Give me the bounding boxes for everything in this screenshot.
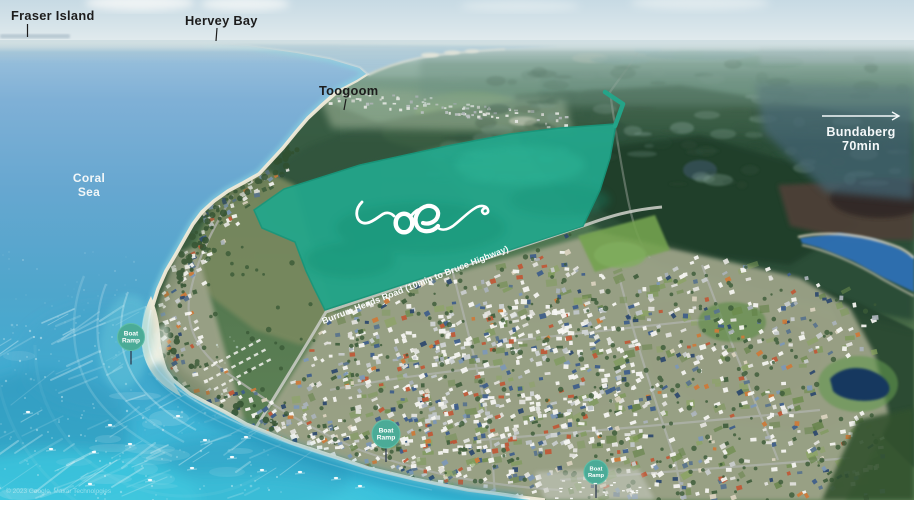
svg-text:Sea: Sea	[78, 185, 100, 199]
svg-text:© 2023 Google, Maxar Technolog: © 2023 Google, Maxar Technologies	[6, 487, 112, 495]
svg-text:70min: 70min	[842, 139, 880, 153]
svg-text:Hervey Bay: Hervey Bay	[185, 13, 258, 28]
svg-text:Toogoom: Toogoom	[319, 83, 378, 98]
svg-text:Boat: Boat	[379, 427, 395, 434]
svg-text:Bundaberg: Bundaberg	[826, 125, 895, 139]
svg-text:Boat: Boat	[590, 467, 603, 473]
svg-text:Ramp: Ramp	[588, 473, 605, 479]
svg-text:Ramp: Ramp	[377, 435, 396, 442]
svg-text:Fraser Island: Fraser Island	[11, 8, 95, 23]
svg-text:Boat: Boat	[124, 330, 139, 337]
svg-text:Coral: Coral	[73, 171, 105, 185]
svg-text:Ramp: Ramp	[122, 337, 140, 344]
